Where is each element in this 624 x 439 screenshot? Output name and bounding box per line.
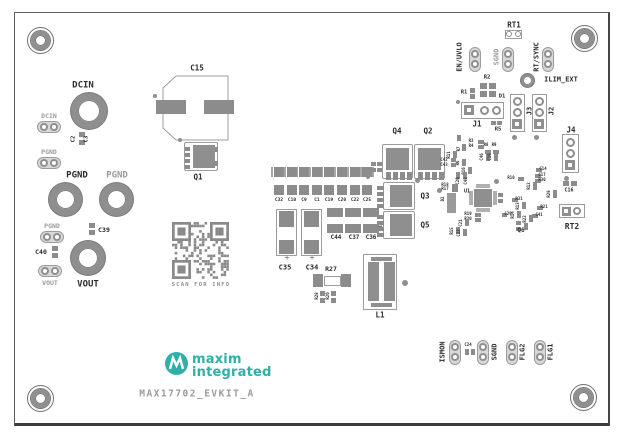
pad-282 [529,215,533,222]
pad-197 [571,181,577,186]
pad-41 [214,161,218,166]
pad-61 [324,167,334,177]
label-r6-217: R6 [456,161,460,166]
label-r13-273: R13 [516,202,520,209]
pad-119 [400,172,405,180]
label-r5-177: R5 [495,127,502,133]
pad-93 [304,211,319,227]
label-vout-27: VOUT [42,280,58,287]
tp-ilim-ext [521,74,534,87]
pad-81 [345,224,361,233]
logo-trademark: ™ [261,372,266,377]
label-c21-250: C21 [459,219,463,226]
label-c1-72: C1 [314,199,319,204]
ring-151 [515,31,521,37]
label-c3-11: C3 [84,136,90,143]
label-vout-29: VOUT [77,281,99,290]
pad-63 [337,167,347,177]
outline-r27 [324,276,341,286]
pad-94 [304,240,319,254]
tp-hole [40,123,48,131]
label-c36-85: C36 [366,235,377,241]
pad-117 [386,172,391,180]
label--95: + [310,254,315,262]
pad-144 [377,162,382,166]
dot-173 [456,100,460,104]
pad-131 [377,192,384,196]
label-sgnd-294: SGND [492,344,499,361]
label-c2-10: C2 [71,136,77,143]
pad-20 [89,223,95,228]
ring-172 [492,106,501,115]
hole-dcin [71,93,107,129]
label-c20-74: C20 [338,199,346,204]
pad-216 [462,159,466,166]
pad-247 [475,218,481,222]
label-j1-174: J1 [472,120,481,128]
label-r1-165: R1 [461,90,468,96]
pad-253 [463,229,467,236]
fill-44 [271,167,273,177]
fill-108 [368,262,379,301]
label-q1-43: Q1 [193,173,202,181]
fill-238 [476,184,490,188]
label-pgnd-12: PGND [41,149,57,156]
label-ilimext-159: ILIM_EXT [544,77,578,84]
fill-35 [193,145,215,168]
pcb-board-image: SCAN FOR INFO maxim integrated ™ MAX1770… [0,0,624,439]
hole-pgnd-2 [100,183,133,216]
pad-59 [312,167,322,177]
mounting-hole-top-left [27,27,54,54]
tp-sgnd-bottom [477,340,489,365]
qr-caption: SCAN FOR INFO [172,282,231,288]
tp-hole [536,343,544,351]
pad-53 [274,167,284,177]
hole-vout [71,241,105,275]
ring-201 [573,207,581,215]
ring-179 [513,97,522,106]
pad-21 [89,230,95,235]
tp-hole [504,60,512,68]
label-c44-83: C44 [331,235,342,241]
pad-138 [377,221,384,225]
pad-196 [563,181,569,186]
tp-hole [50,159,58,167]
pad-126 [432,172,437,180]
label-r29-269: R29 [547,190,551,197]
label-pgnd-14: PGND [66,172,88,181]
qr-code [172,222,229,279]
pad-32 [204,100,234,114]
board-title: MAX17702_EVKIT_A [139,389,255,400]
pad-163 [480,91,487,97]
pad-132 [377,198,384,202]
label-c14-261: C14 [539,167,546,171]
pad-145 [377,168,382,172]
tp-rt-sync [542,47,554,72]
fill-239 [476,208,490,212]
label-r27-97: R27 [325,266,337,273]
tp-hole [53,233,61,241]
fill-109 [384,262,395,301]
fill-129 [390,185,412,207]
label-j4-190: J4 [566,126,575,134]
label-c35-91: C35 [279,265,292,272]
pad-224 [494,153,498,161]
fill-49 [334,167,336,177]
label-dcin-6: DCIN [41,113,57,120]
tp-hole [451,353,459,361]
label-rt1-148: RT1 [507,21,521,29]
dot-255 [494,179,499,184]
dot-189 [534,135,539,140]
label-dcin-4: DCIN [72,82,94,91]
pad-292 [471,349,475,355]
label-r30-265: R30 [538,178,545,182]
pad-56 [287,185,297,195]
tp-dcin [37,121,61,133]
logo-text-integrated: integrated [192,366,272,379]
pad-66 [350,185,360,195]
tp-ismon [449,340,461,365]
pad-164 [489,91,496,97]
tp-hole [50,123,58,131]
tp-hole [40,159,48,167]
pad-234 [452,188,458,192]
maxim-logo-mark [165,352,188,375]
label-c39-22: C39 [98,227,110,234]
tp-vout [38,265,62,277]
tp-pgnd-left [37,157,61,169]
label-flg2-296: FLG2 [520,344,527,361]
dot-146 [366,175,370,179]
label-r31-271: R31 [515,197,522,201]
label-c18-225: C18 [488,153,492,160]
tp-hole [451,343,459,351]
pad-118 [393,172,398,180]
pad-142 [371,162,376,166]
tp-hole [479,353,487,361]
pad-256 [498,193,503,197]
pad-249 [465,219,469,226]
pad-266 [533,182,537,190]
label-d2-243: D2 [441,197,445,202]
pad-167 [470,94,475,99]
label-r10-259: R10 [507,176,514,180]
dot-195 [564,176,569,181]
tp-flg1 [534,340,546,365]
fill-136 [390,214,412,236]
sq-187 [534,119,544,129]
label-c40-23: C40 [35,249,47,256]
label-r7-205: R7 [457,147,461,152]
pad-175 [491,121,496,125]
pad-203 [457,135,461,141]
label-r8-211: R8 [484,143,489,147]
label-c19-73: C19 [325,199,333,204]
sq-181 [512,119,522,129]
dot-244 [437,188,442,193]
pad-268 [553,190,557,198]
pad-291 [465,349,469,355]
label-u1-241: U1 [464,190,470,195]
label-sgnd-154: SGND [494,49,501,66]
label-c43-221: C43 [440,163,447,167]
label-flg1-298: FLG1 [548,344,555,361]
label-c46-223: C46 [480,153,484,160]
fill-237 [493,191,497,205]
tp-pgnd-lower [40,231,64,243]
pad-25 [52,253,58,258]
sq-194 [565,160,575,170]
pad-162 [489,83,496,89]
label-r26-104: R26 [326,292,330,299]
pad-125 [425,172,430,180]
pad-64 [337,185,347,195]
tp-en-uvlo [469,47,481,72]
tp-hole [41,267,49,275]
pad-31 [156,100,186,114]
ring-171 [480,106,489,115]
pad-24 [52,246,58,251]
sq-200 [562,207,571,216]
pad-139 [377,227,384,231]
label-c41-281: C41 [535,213,542,217]
pad-130 [377,186,384,190]
part-d2 [447,193,456,213]
tp-hole [479,343,487,351]
pad-137 [377,215,384,219]
ring-150 [506,31,512,37]
fill-110 [371,257,392,261]
label-j2-188: J2 [549,107,556,115]
pad-140 [377,233,384,237]
pad-272 [522,202,526,209]
pad-120 [407,172,412,180]
label-c23-254: C23 [457,229,461,236]
mounting-hole-bottom-left [27,385,54,412]
sq-170 [464,105,474,115]
tp-hole [508,353,516,361]
dot-33 [153,94,157,98]
pad-88 [279,211,294,227]
label-r17-235: R17 [441,187,448,191]
label-q3-134: Q3 [420,192,429,200]
hole-pgnd-1 [49,183,82,216]
pad-214 [453,151,457,158]
tp-hole [471,60,479,68]
tp-hole [536,353,544,361]
pad-204 [462,144,466,151]
label-c34-96: C34 [306,265,319,272]
label-r21-279: R21 [540,205,547,209]
label-c32-69: C32 [275,199,283,204]
label-c48-231: C48 [464,177,468,184]
pad-127 [439,172,444,180]
label-pgnd-18: PGND [44,223,60,230]
label-rt2-202: RT2 [565,223,579,231]
dot-42 [178,138,182,142]
tp-hole [471,50,479,58]
fill-47 [309,167,311,177]
label-c9-71: C9 [301,199,306,204]
tp-flg2 [506,340,518,365]
label-c29-277: C29 [504,212,511,216]
label-c16-198: C16 [564,189,573,194]
label-r4-209: R4 [469,144,474,148]
ring-185 [535,97,544,106]
pad-143 [371,168,376,172]
pad-274 [517,211,521,218]
pad-245 [475,213,481,217]
ring-180 [513,108,522,117]
pad-77 [327,208,343,217]
pad-284 [516,221,521,225]
pad-105 [331,291,336,296]
dot-183 [512,135,517,140]
pad-58 [299,185,309,195]
ring-192 [566,138,575,147]
pad-37 [185,153,190,157]
pad-78 [345,208,361,217]
tp-hole [544,60,552,68]
pad-106 [331,298,336,303]
dot-113 [402,280,408,286]
fill-111 [371,303,392,307]
label-d1-168: D1 [499,94,506,100]
label-r9-213: R9 [492,143,497,147]
ic-u1 [474,189,492,207]
fill-45 [284,167,286,177]
label-r22-283: R22 [523,215,527,222]
label-enuvlo-152: EN/UVLO [457,42,464,72]
mounting-hole-top-right [571,25,598,52]
pad-176 [497,121,502,125]
fill-50 [347,167,349,177]
pad-39 [185,165,190,169]
pad-40 [214,147,218,152]
pad-38 [185,159,190,163]
pad-55 [287,167,297,177]
label-r15-252: R15 [450,227,454,234]
pad-133 [377,204,384,208]
label-c15-30: C15 [190,64,204,72]
pad-226 [468,167,472,174]
ring-186 [535,108,544,117]
label-c37-84: C37 [349,235,360,241]
label-c24-290: C24 [464,343,471,347]
dot-147 [415,178,420,183]
tp-hole [544,50,552,58]
pad-57 [299,167,309,177]
pad-98 [313,274,323,287]
label-q2-121: Q2 [423,127,432,135]
label-r2-160: R2 [484,75,491,81]
tp-sgnd-top [502,47,514,72]
fill-123 [418,148,441,170]
tp-hole [51,267,59,275]
label-c22-75: C22 [351,199,359,204]
label-c25-76: C25 [363,199,371,204]
label-q5-141: Q5 [420,221,429,229]
pad-36 [185,147,190,151]
pad-218 [451,158,456,162]
label--90: + [285,254,290,262]
label-q4-114: Q4 [392,127,401,135]
tp-hole [504,50,512,58]
pad-89 [279,240,294,254]
label-ismon-288: ISMON [440,341,447,362]
label-q6-287: Q6 [517,228,524,234]
pad-166 [470,88,475,93]
pad-62 [324,185,334,195]
label-pgnd-15: PGND [106,172,128,181]
pad-257 [498,199,503,203]
tp-hole [508,343,516,351]
pad-65 [350,167,360,177]
label-r28-101: R28 [315,292,319,299]
pad-60 [312,185,322,195]
label-c10-70: C10 [288,199,296,204]
label-r12-267: R12 [527,182,531,189]
pad-68 [362,185,372,195]
pad-220 [451,163,456,167]
tp-hole [43,233,51,241]
pad-80 [327,224,343,233]
pad-161 [480,83,487,89]
mounting-hole-bottom-right [570,384,597,411]
pad-99 [341,274,351,287]
fill-116 [386,148,409,170]
label-l1-112: L1 [375,311,384,319]
ring-193 [566,149,575,158]
pad-54 [274,185,284,195]
pad-258 [518,177,524,181]
label-rtsync-156: RT/SYNC [534,42,541,72]
